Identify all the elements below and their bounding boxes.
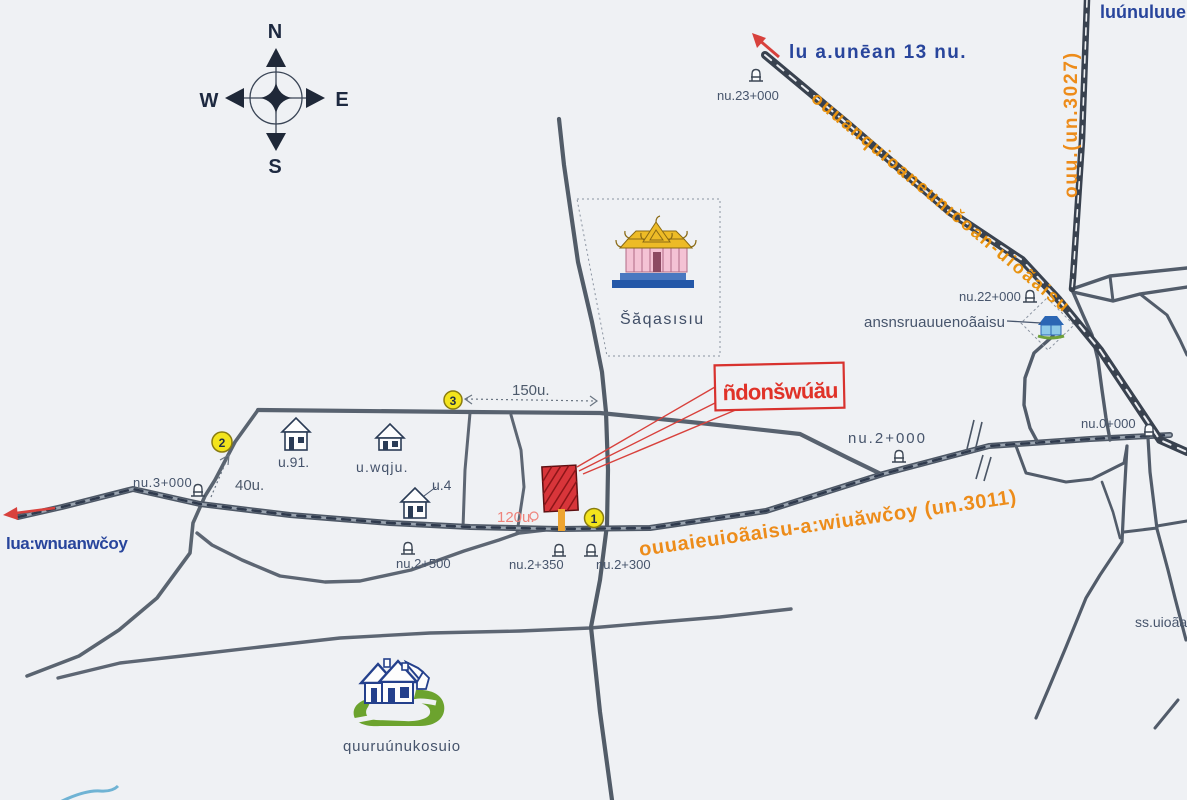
svg-text:150u.: 150u. [512, 382, 550, 399]
svg-text:2: 2 [219, 436, 226, 450]
svg-text:3: 3 [450, 394, 457, 408]
svg-text:nu.2+000: nu.2+000 [848, 430, 927, 447]
svg-text:lu a.unēan 13 nu.: lu a.unēan 13 nu. [789, 42, 967, 63]
svg-text:40u.: 40u. [235, 477, 264, 494]
svg-text:quuruúnukosuio: quuruúnukosuio [343, 738, 461, 755]
svg-text:nu.22+000: nu.22+000 [959, 289, 1021, 304]
svg-text:E: E [335, 89, 348, 111]
svg-text:Šăqasısıu: Šăqasısıu [620, 309, 705, 328]
svg-text:nu.2+500: nu.2+500 [396, 556, 451, 571]
svg-text:ouu.(un.3027): ouu.(un.3027) [1061, 51, 1082, 198]
svg-text:N: N [268, 21, 282, 43]
svg-text:luúnuluuen: luúnuluuen [1100, 2, 1187, 22]
svg-text:ansnsruauuenoãaisu: ansnsruauuenoãaisu [864, 314, 1005, 331]
svg-text:120u.: 120u. [497, 509, 535, 526]
svg-text:u.91.: u.91. [278, 454, 309, 470]
svg-text:u.4: u.4 [432, 477, 452, 493]
svg-text:nu.2+350: nu.2+350 [509, 557, 564, 572]
svg-text:nu.0+000: nu.0+000 [1081, 416, 1136, 431]
svg-text:S: S [268, 156, 281, 178]
svg-text:W: W [200, 90, 219, 112]
svg-text:lua:wnuanwčoy: lua:wnuanwčoy [6, 534, 128, 553]
svg-text:u.wqju.: u.wqju. [356, 459, 409, 475]
svg-text:1: 1 [591, 512, 598, 526]
svg-text:ñdonšwúău: ñdonšwúău [722, 378, 838, 405]
svg-text:ss.uioãa: ss.uioãa [1135, 614, 1187, 630]
svg-text:nu.3+000: nu.3+000 [133, 475, 192, 490]
svg-text:nu.23+000: nu.23+000 [717, 88, 779, 103]
